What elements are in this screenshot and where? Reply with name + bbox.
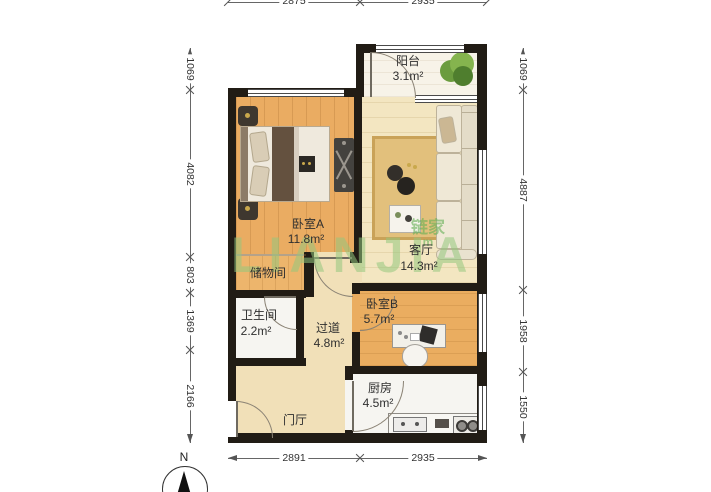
top-dim-2: 2935 xyxy=(408,0,437,7)
corridor-area: 4.8m² xyxy=(314,336,345,350)
bed-pillow xyxy=(249,131,270,163)
kitchen-counter xyxy=(388,413,479,435)
kitchen-door-leaf xyxy=(352,381,354,431)
bedroom-b-label: 卧室B xyxy=(366,297,398,311)
bedroom-b-window xyxy=(478,294,487,352)
sink-knob xyxy=(401,422,405,426)
bathroom-right-wall xyxy=(296,290,304,365)
living-bedroom-b-wall xyxy=(352,283,487,291)
bedroom-b-area: 5.7m² xyxy=(364,312,395,326)
living-room-window xyxy=(478,150,487,254)
bottom-dim-1: 2891 xyxy=(279,452,308,464)
desk-item xyxy=(398,331,402,335)
dim-arrow-down xyxy=(187,434,193,443)
bedroom-b-door-opening xyxy=(352,294,360,332)
storage-label: 储物间 xyxy=(250,266,286,280)
bed-cushion xyxy=(299,156,315,172)
dim-arrow-down xyxy=(520,434,526,443)
chair xyxy=(402,344,428,368)
living-room-label: 客厅 xyxy=(409,243,433,257)
left-dim-4: 1369 xyxy=(184,306,196,335)
bathroom-area: 2.2m² xyxy=(241,324,272,338)
left-dim-5: 2166 xyxy=(184,381,196,410)
bathroom-label: 卫生间 xyxy=(241,308,277,322)
compass-needle-icon xyxy=(177,471,191,492)
foyer-label: 门厅 xyxy=(283,413,307,427)
bed xyxy=(240,126,330,202)
right-dim-line xyxy=(523,48,524,443)
living-room-area: 14.3m² xyxy=(400,259,437,273)
left-dim-1: 1069 xyxy=(184,54,196,83)
nightstand-knob xyxy=(245,206,250,211)
bed-headboard xyxy=(241,127,248,201)
right-dim-1: 1069 xyxy=(517,54,529,83)
corridor-floor-lower xyxy=(304,297,314,366)
plant-leaf xyxy=(453,66,473,86)
right-dim-3: 1958 xyxy=(517,316,529,345)
bedroom-a-area: 11.8m² xyxy=(288,232,324,246)
cushion-dot xyxy=(302,162,305,165)
left-dim-2: 4082 xyxy=(184,159,196,188)
kitchen-area: 4.5m² xyxy=(363,396,394,410)
cutting-board xyxy=(435,419,449,428)
gold-dot xyxy=(413,165,417,169)
bedroom-a-window xyxy=(248,89,344,97)
dim-arrow-right xyxy=(478,455,487,461)
dim-arrow-left xyxy=(228,455,237,461)
nightstand-top xyxy=(238,106,258,126)
kitchen-label: 厨房 xyxy=(368,381,392,395)
monitor xyxy=(418,325,438,345)
gold-dot xyxy=(407,163,411,167)
compass-north-label: N xyxy=(180,450,189,464)
corridor-label: 过道 xyxy=(316,321,340,335)
floor-plan: LIANJIA 链家 m 阳台 3.1m² 卧室A 11.8m² 客厅 14.3… xyxy=(0,0,711,492)
desk-item xyxy=(404,335,408,339)
sink xyxy=(393,417,427,432)
teapot xyxy=(397,177,415,195)
wardrobe-dot xyxy=(342,184,346,188)
wardrobe-dot xyxy=(342,141,346,145)
bathroom-bottom-wall xyxy=(228,358,306,366)
wardrobe xyxy=(334,138,354,192)
balcony-area: 3.1m² xyxy=(393,69,424,83)
dim-tick xyxy=(483,0,491,6)
bed-blanket xyxy=(272,127,294,201)
kitchen-window xyxy=(478,386,487,430)
cushion-dot xyxy=(308,162,311,165)
balcony-living-window xyxy=(415,95,477,103)
plant xyxy=(440,52,474,88)
tray-item xyxy=(395,212,401,218)
bed-pillow xyxy=(249,165,270,197)
kitchen-top-wall xyxy=(345,366,487,374)
balcony-window xyxy=(376,45,464,53)
dim-tick xyxy=(224,0,232,6)
left-dim-3: 803 xyxy=(184,263,196,287)
sofa-seat xyxy=(436,153,462,201)
entry-door-opening xyxy=(228,401,236,437)
bottom-dim-2: 2935 xyxy=(408,452,437,464)
bathroom-door-leaf xyxy=(264,296,296,298)
nightstand-knob xyxy=(245,113,250,118)
stove xyxy=(453,416,478,434)
lianjia-logo-cn: 链家 xyxy=(411,220,445,235)
sink-knob xyxy=(415,422,419,426)
balcony-label: 阳台 xyxy=(396,54,420,68)
right-dim-2: 4887 xyxy=(517,175,529,204)
entry-door-leaf xyxy=(236,401,238,437)
top-dim-1: 2875 xyxy=(279,0,308,7)
desk-paper xyxy=(410,333,420,341)
balcony-door-leaf xyxy=(370,52,372,97)
right-dim-4: 1550 xyxy=(517,392,529,421)
bedroom-a-label: 卧室A xyxy=(292,217,324,231)
